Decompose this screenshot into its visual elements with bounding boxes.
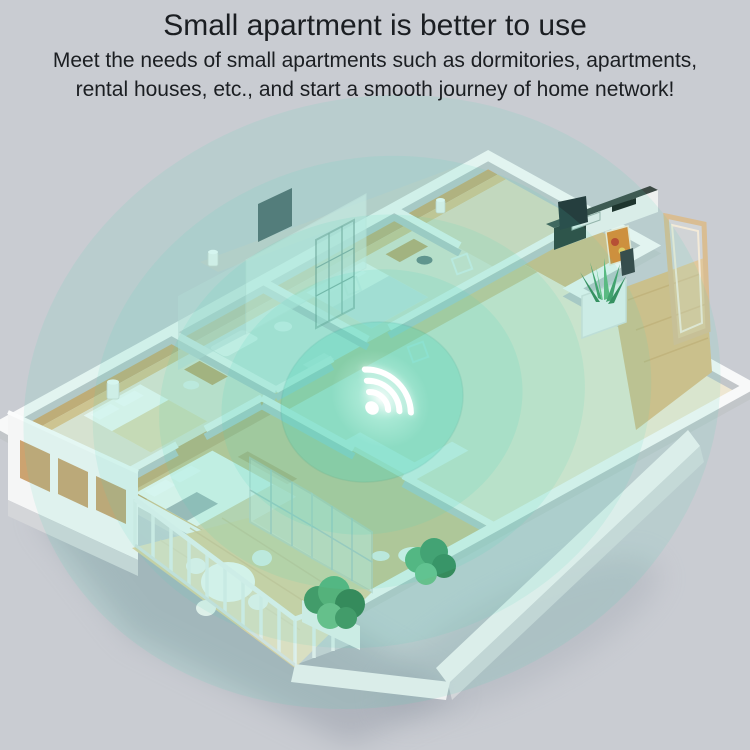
page-title: Small apartment is better to use bbox=[0, 7, 750, 45]
subtitle-line-2: rental houses, etc., and start a smooth … bbox=[0, 76, 750, 105]
page: Small apartment is better to use Meet th… bbox=[0, 0, 750, 750]
subtitle-line-1: Meet the needs of small apartments such … bbox=[0, 47, 750, 76]
page-subtitle: Meet the needs of small apartments such … bbox=[0, 47, 750, 104]
header: Small apartment is better to use Meet th… bbox=[0, 7, 750, 104]
apartment-floorplan-illustration bbox=[0, 0, 750, 750]
